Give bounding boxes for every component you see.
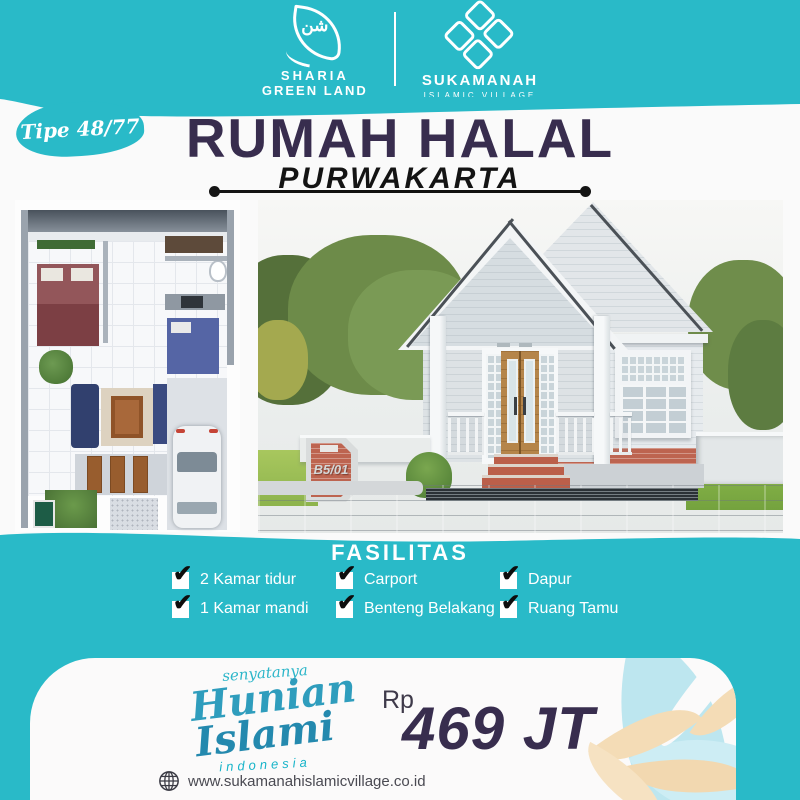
facilities-column-3: ✔ Dapur ✔ Ruang Tamu [500, 570, 618, 619]
checkbox: ✔ [172, 572, 189, 589]
checkbox: ✔ [336, 601, 353, 618]
fp-master-bed [37, 264, 99, 346]
brand-header: شن SHARIA GREEN LAND SUKAMANAH ISLAMIC V… [0, 0, 800, 106]
facility-item: ✔ 1 Kamar mandi [172, 599, 309, 619]
checkbox: ✔ [172, 601, 189, 618]
side-fence-wall [696, 432, 783, 484]
website-url: www.sukamanahislamicvillage.co.id [188, 773, 426, 790]
house-render-image: B5/01 [258, 200, 783, 533]
checkbox: ✔ [500, 572, 517, 589]
door-sidelight [539, 354, 554, 458]
check-icon: ✔ [337, 591, 356, 614]
fp-table [111, 396, 143, 438]
facility-item: ✔ 2 Kamar tidur [172, 570, 309, 590]
page-title: RUMAH HALAL [0, 106, 800, 170]
checkbox: ✔ [500, 601, 517, 618]
fp-roof [21, 210, 234, 232]
tree [258, 320, 308, 400]
porch-column [430, 316, 446, 468]
sharia-green-land-logo: شن SHARIA GREEN LAND [262, 6, 368, 98]
fp-second-bed [167, 318, 219, 374]
fp-car [173, 426, 221, 528]
floor-plan-image [15, 200, 240, 532]
leaf-icon: شن [283, 6, 347, 64]
sukamanah-logo: SUKAMANAH ISLAMIC VILLAGE [422, 6, 538, 100]
house-number: B5/01 [306, 462, 356, 477]
facility-item: ✔ Dapur [500, 570, 618, 590]
fp-toilet [209, 260, 227, 282]
facilities-heading: FASILITAS [0, 540, 800, 566]
facility-item: ✔ Ruang Tamu [500, 599, 618, 619]
website-row: www.sukamanahislamicvillage.co.id [158, 770, 426, 792]
facilities-column-1: ✔ 2 Kamar tidur ✔ 1 Kamar mandi [172, 570, 309, 619]
price-amount: 469 JT [402, 694, 595, 763]
hunian-islami-logo: senyatanya Hunian Islami indonesia [190, 664, 340, 772]
facilities-column-2: ✔ Carport ✔ Benteng Belakang [336, 570, 495, 619]
door-sidelight [486, 354, 501, 458]
arabic-glyph: شن [283, 16, 347, 36]
porch-railing [556, 412, 594, 458]
flyer-canvas: شن SHARIA GREEN LAND SUKAMANAH ISLAMIC V… [0, 0, 800, 800]
check-icon: ✔ [173, 562, 192, 585]
knot-icon [440, 0, 519, 78]
door-handle [514, 397, 517, 415]
main-panel: Tipe 48/77 RUMAH HALAL PURWAKARTA [0, 98, 800, 548]
porch-column [594, 316, 610, 468]
fp-plant [39, 350, 73, 384]
porch-railing [610, 412, 632, 458]
sharia-name: SHARIA [281, 68, 349, 83]
fp-sofa [71, 384, 99, 448]
facility-item: ✔ Benteng Belakang [336, 599, 495, 619]
check-icon: ✔ [173, 591, 192, 614]
check-icon: ✔ [501, 562, 520, 585]
check-icon: ✔ [337, 562, 356, 585]
check-icon: ✔ [501, 591, 520, 614]
checkbox: ✔ [336, 572, 353, 589]
title-underline [214, 190, 586, 193]
tree [728, 320, 783, 430]
logo-divider [394, 12, 396, 86]
globe-icon [158, 770, 180, 792]
porch-railing [448, 412, 484, 458]
door-handle [523, 397, 526, 415]
facility-item: ✔ Carport [336, 570, 495, 590]
sharia-name2: GREEN LAND [262, 83, 368, 98]
price-panel: senyatanya Hunian Islami indonesia Rp 46… [30, 658, 736, 800]
